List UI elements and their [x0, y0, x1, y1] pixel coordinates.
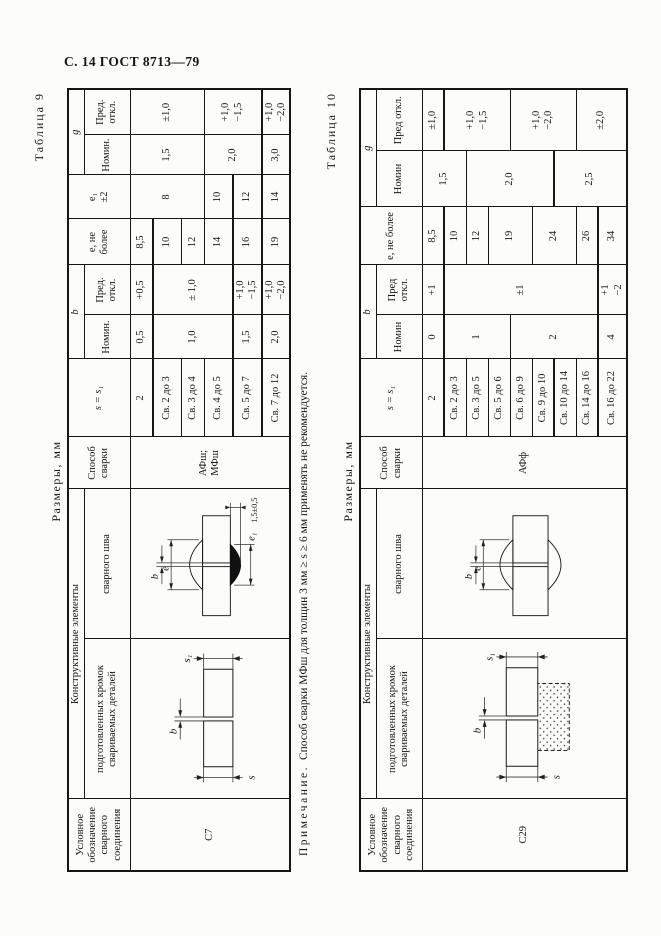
table-9: Условное обозначение сварного соединения… [67, 88, 291, 872]
t9-h-method: Способ сварки [68, 437, 130, 489]
cell-s: Св. 2 до 3 [153, 359, 181, 437]
cell-e1: 8 [130, 175, 204, 219]
t10-weld-cell: b e [422, 489, 627, 639]
cell-g-nom: 1,5 [130, 135, 204, 175]
cell-b-nom: 2,0 [262, 315, 291, 359]
cell-b-nom: 0 [422, 315, 444, 359]
cell-g-dev: ±2,0 [576, 89, 627, 151]
table10-label: Таблица 10 [324, 90, 339, 872]
dim-label-e1: e₁ [246, 533, 257, 541]
t9-h-s: s = s₁ [68, 359, 130, 437]
content-column: Таблица 9 Размеры, мм Условное обозначен… [32, 90, 628, 872]
cell-s: Св. 2 до 3 [444, 359, 466, 437]
cell-s: 2 [422, 359, 444, 437]
cell-e: 12 [181, 219, 204, 265]
cell-s: Св. 14 до 16 [576, 359, 598, 437]
t10-h-constructive: Конструктивные элементы [360, 489, 376, 799]
dim-label-s1: s₁ [181, 655, 193, 663]
note-label: Примечание. [298, 765, 310, 856]
t10-method-value: АФф [422, 437, 627, 489]
table-10: Условное обозначение сварного соединения… [359, 88, 628, 872]
cell-b-nom: 4 [598, 315, 627, 359]
dim-label-bead-height: 1,5±0,5 [250, 498, 259, 523]
cell-b-nom: 0,5 [130, 315, 153, 359]
cell-e: 10 [444, 207, 466, 265]
t9-weld-cell: b e e₁ 1,5±0,5 [130, 489, 290, 639]
t9-h-designation: Условное обозначение сварного соединения [68, 799, 130, 871]
cell-b-dev: +1 [422, 265, 444, 315]
t10-header-row-1: Условное обозначение сварного соединения… [360, 89, 376, 871]
cell-b-dev: ±1 [444, 265, 598, 315]
dim-label-b: b [472, 728, 484, 734]
t10-h-designation: Условное обозначение сварного соединения [360, 799, 422, 871]
cell-e: 14 [204, 219, 232, 265]
cell-e: 12 [466, 207, 488, 265]
t10-edge-prep-cell: b s s₁ [422, 639, 627, 799]
t10-h-weld: сварного шва [376, 489, 422, 639]
dim-label-s: s [246, 776, 258, 780]
t9-h-weld: сварного шва [84, 489, 130, 639]
cell-s: Св. 10 до 14 [554, 359, 576, 437]
t10-h-s: s = s₁ [360, 359, 422, 437]
cell-s: Св. 5 до 7 [233, 359, 262, 437]
cell-e: 19 [488, 207, 532, 265]
dim-label-b: b [168, 729, 180, 735]
table10-sizes-note: Размеры, мм [341, 90, 356, 872]
t9-h-constructive: Конструктивные элементы [68, 489, 84, 799]
table9-note: Примечание.Способ сварки МФш для толщин … [298, 90, 310, 856]
t10-h-g-nom: Номин [376, 151, 422, 207]
rotated-content: Таблица 9 Размеры, мм Условное обозначен… [32, 72, 628, 928]
cell-b-nom: 2 [510, 315, 598, 359]
t10-h-g-dev: Пред откл. [376, 89, 422, 151]
t10-h-g: g [360, 89, 376, 207]
t9-h-b-nom: Номин. [84, 315, 130, 359]
cell-g-nom: 2,0 [204, 135, 261, 175]
cell-s: Св. 9 до 10 [532, 359, 554, 437]
t9-edge-prep-cell: b s s₁ [130, 639, 290, 799]
cell-b-nom: 1,5 [233, 315, 262, 359]
note-text: Способ сварки МФш для толщин 3 мм ≥ s ≥ … [298, 372, 310, 760]
cell-b-nom: 1 [444, 315, 510, 359]
cell-e: 24 [532, 207, 576, 265]
dim-label-e: e [473, 566, 484, 571]
table9-label: Таблица 9 [32, 90, 47, 872]
cell-e: 8,5 [422, 207, 444, 265]
t10-h-e: е, не более [360, 207, 422, 265]
cell-e1: 10 [204, 175, 232, 219]
cell-g-nom: 2,0 [466, 151, 554, 207]
t10-designation-value: С29 [422, 799, 627, 871]
cell-g-nom: 1,5 [422, 151, 466, 207]
cell-g-nom: 2,5 [554, 151, 627, 207]
table-row: С29 b [422, 89, 444, 871]
t9-h-b-dev: Пред. откл. [84, 265, 130, 315]
t10-weld-seam-diagram: b e [459, 489, 589, 637]
cell-e: 19 [262, 219, 291, 265]
cell-g-dev: ±1,0 [422, 89, 444, 151]
cell-s: Св. 6 до 9 [510, 359, 532, 437]
t9-method-value: АФш; МФш [130, 437, 290, 489]
cell-b-dev: +1,0 −2,0 [262, 265, 291, 315]
t9-h-e1: е₁ ±2 [68, 175, 130, 219]
cell-s: Св. 16 до 22 [598, 359, 627, 437]
cell-e: 10 [153, 219, 181, 265]
t9-h-edges: подготовленных кромок свариваемых детале… [84, 639, 130, 799]
t9-h-e: е, не более [68, 219, 130, 265]
dim-label-e: e [160, 566, 171, 571]
cell-g-dev: +1,0 −1,5 [204, 89, 261, 135]
cell-e: 26 [576, 207, 598, 265]
cell-b-dev: ± 1,0 [153, 265, 233, 315]
cell-b-dev: +0,5 [130, 265, 153, 315]
cell-e: 34 [598, 207, 627, 265]
table9-sizes-note: Размеры, мм [49, 90, 64, 872]
t10-h-edges: подготовленных кромок свариваемых детале… [376, 639, 422, 799]
cell-e: 16 [233, 219, 262, 265]
t10-h-b-nom: Номин [376, 315, 422, 359]
cell-e1: 14 [262, 175, 291, 219]
table-row: С7 b s [130, 89, 153, 871]
t9-h-g: g [68, 89, 84, 175]
cell-g-dev: ±1,0 [130, 89, 204, 135]
t9-designation-value: С7 [130, 799, 290, 871]
cell-g-dev: +1,0 −1,5 [444, 89, 510, 151]
t10-h-b-dev: Пред откл. [376, 265, 422, 315]
cell-s: Св. 3 до 4 [181, 359, 204, 437]
dim-label-b: b [150, 575, 161, 580]
t9-header-row-1: Условное обозначение сварного соединения… [68, 89, 84, 871]
cell-g-nom: 3,0 [262, 135, 291, 175]
t9-weld-seam-diagram: b e e₁ 1,5±0,5 [145, 489, 275, 637]
t10-h-method: Способ сварки [360, 437, 422, 489]
document-page: С. 14 ГОСТ 8713—79 Таблица 9 Размеры, мм… [0, 0, 661, 936]
page-header: С. 14 ГОСТ 8713—79 [64, 54, 200, 70]
cell-g-dev: +1,0 −2,0 [510, 89, 576, 151]
t10-edge-prep-diagram: b s s₁ [459, 639, 589, 797]
t9-edge-prep-diagram: b s s₁ [147, 641, 272, 797]
cell-s: 2 [130, 359, 153, 437]
cell-s: Св. 3 до 5 [466, 359, 488, 437]
dim-label-s: s [551, 775, 563, 779]
t9-h-b: b [68, 265, 84, 359]
cell-b-dev: +1,0 −1,5 [233, 265, 262, 315]
cell-s: Св. 5 до 6 [488, 359, 510, 437]
cell-e1: 12 [233, 175, 262, 219]
dim-label-s1: s₁ [484, 653, 496, 661]
t10-h-b: b [360, 265, 376, 359]
cell-s: Св. 4 до 5 [204, 359, 232, 437]
cell-e: 8,5 [130, 219, 153, 265]
cell-s: Св. 7 до 12 [262, 359, 291, 437]
cell-g-dev: +1,0 −2,0 [262, 89, 291, 135]
t9-h-g-nom: Номин. [84, 135, 130, 175]
dim-label-b: b [465, 575, 476, 580]
t9-h-g-dev: Пред. откл. [84, 89, 130, 135]
cell-b-dev: +1 −2 [598, 265, 627, 315]
cell-b-nom: 1,0 [153, 315, 233, 359]
